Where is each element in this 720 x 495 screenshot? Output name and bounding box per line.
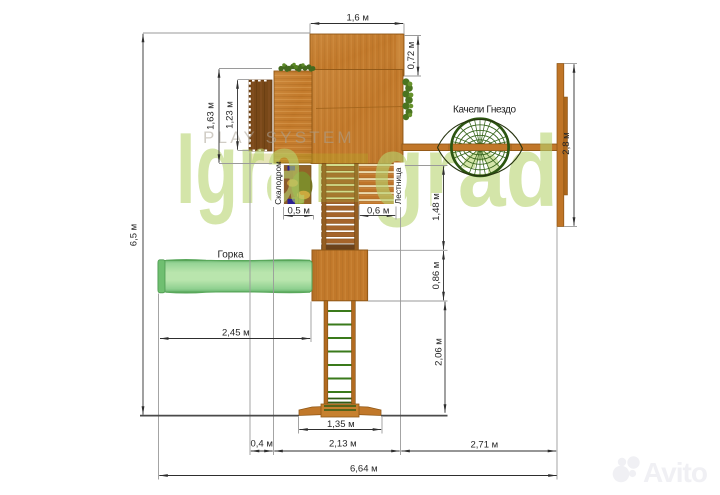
svg-text:0,72 м: 0,72 м [406, 42, 417, 70]
svg-text:Качели Гнездо: Качели Гнездо [453, 105, 517, 116]
svg-text:2,06 м: 2,06 м [434, 338, 445, 366]
svg-text:Лестница: Лестница [393, 167, 403, 204]
svg-text:Горка: Горка [218, 250, 244, 261]
svg-text:0,86 м: 0,86 м [431, 262, 442, 290]
svg-text:0,6 м: 0,6 м [367, 205, 389, 216]
svg-text:2,71 м: 2,71 м [471, 440, 499, 451]
svg-text:1,23 м: 1,23 м [225, 101, 236, 129]
svg-text:1,6 м: 1,6 м [347, 13, 369, 24]
svg-text:1,35 м: 1,35 м [327, 419, 355, 430]
svg-text:Avito: Avito [643, 457, 708, 488]
svg-text:0,5 м: 0,5 м [288, 205, 310, 216]
svg-text:1,48 м: 1,48 м [431, 193, 442, 221]
svg-text:1,63 м: 1,63 м [206, 102, 217, 130]
svg-text:2,8 м: 2,8 м [561, 132, 572, 154]
svg-text:2,13 м: 2,13 м [329, 439, 357, 450]
svg-text:6,5 м: 6,5 м [129, 224, 140, 246]
svg-text:0,4 м: 0,4 м [251, 439, 273, 450]
svg-text:2,45 м: 2,45 м [222, 328, 250, 339]
svg-text:6,64 м: 6,64 м [350, 464, 378, 475]
svg-text:Скалодром: Скалодром [273, 161, 283, 205]
